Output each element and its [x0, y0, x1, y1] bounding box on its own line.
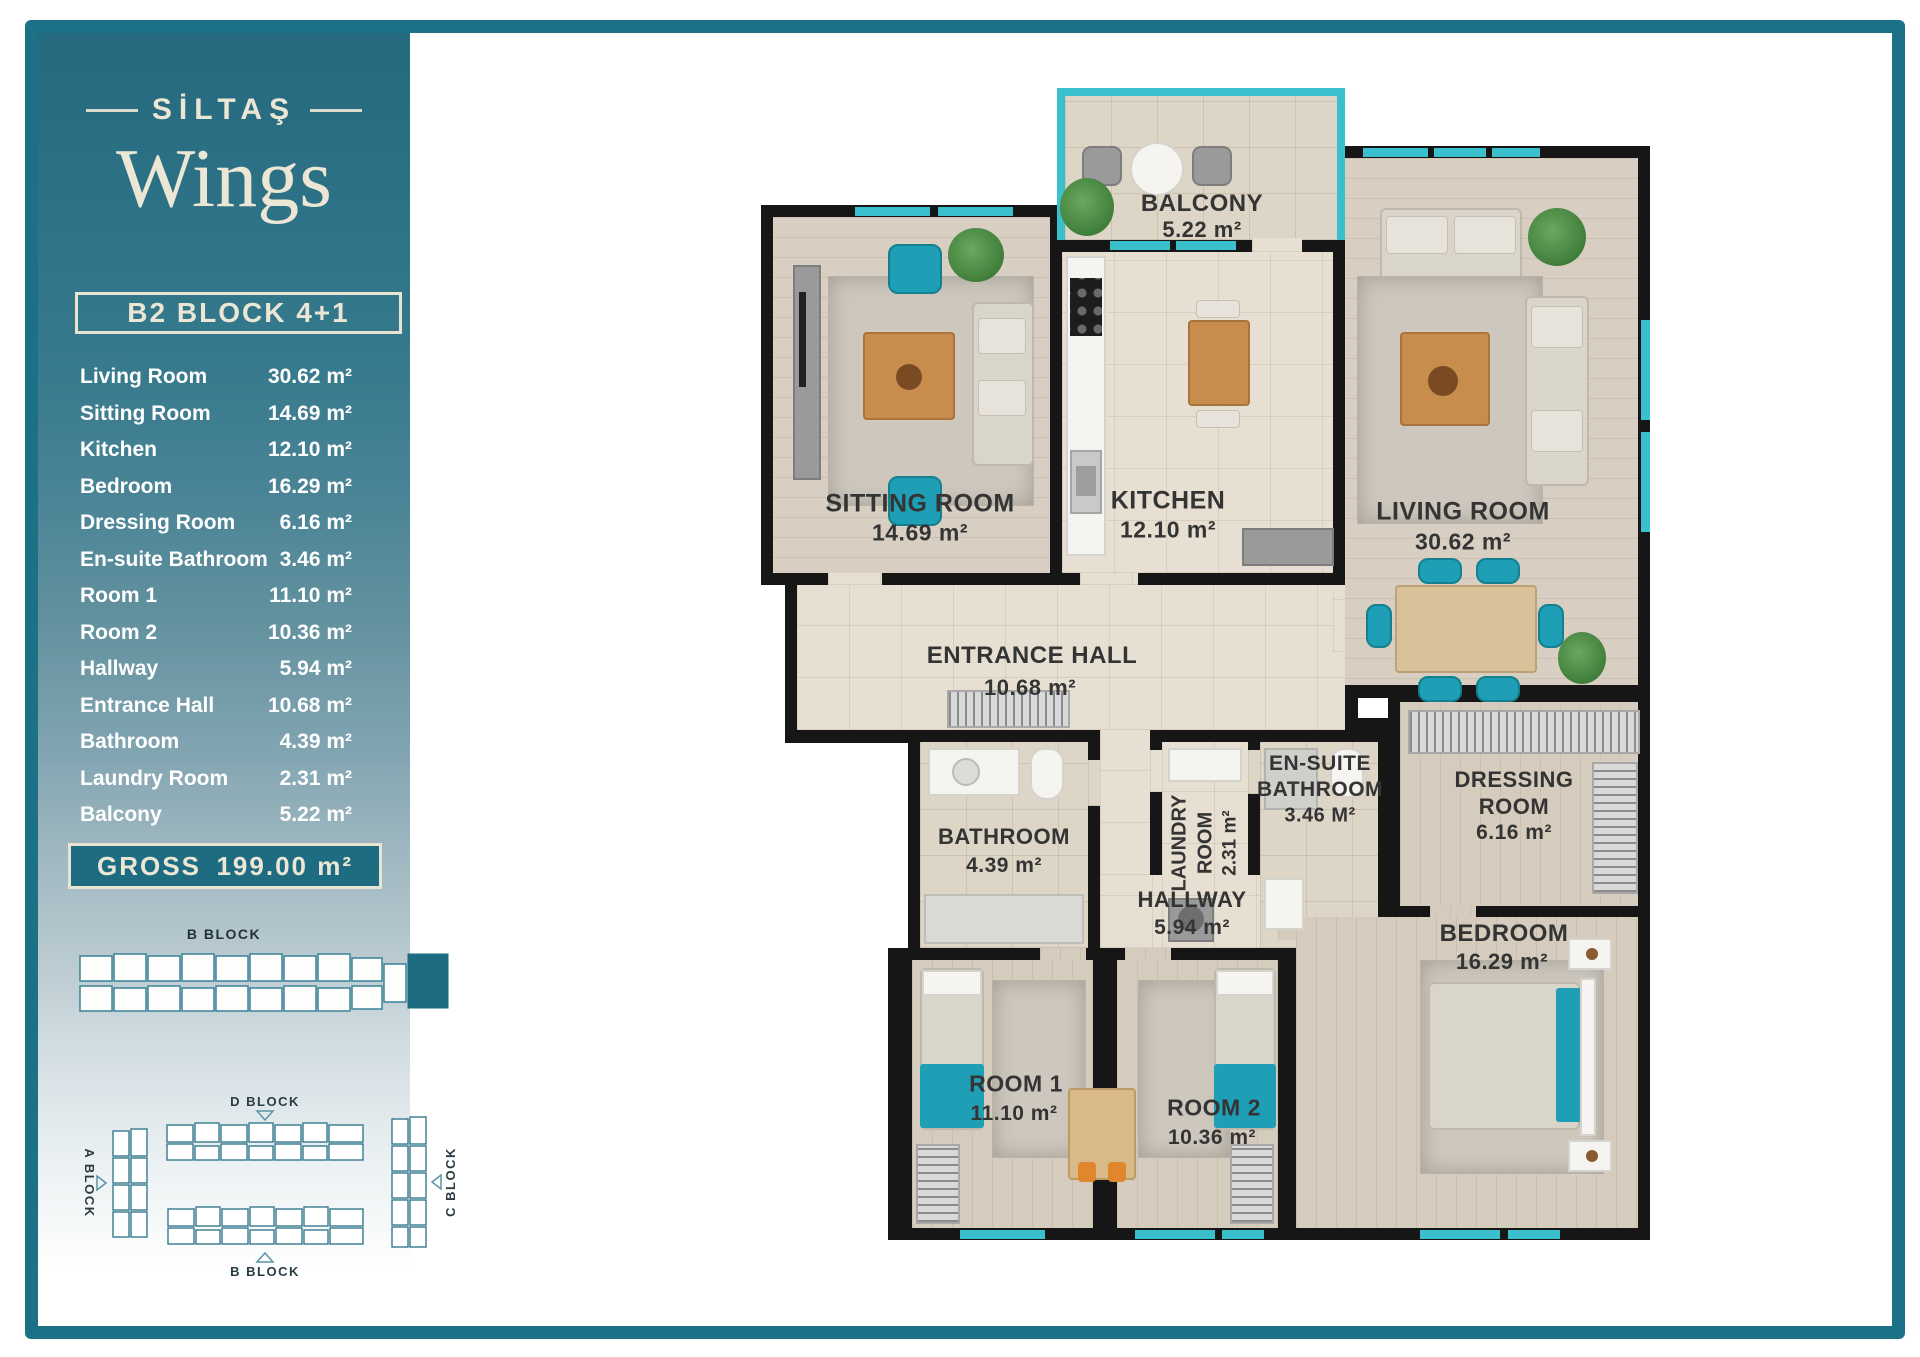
- area-row: Balcony5.22 m²: [80, 797, 352, 834]
- brochure-page: SİLTAŞ Wings B2 BLOCK 4+1 Living Room30.…: [0, 0, 1920, 1357]
- label-hallway-area: 5.94 m²: [1154, 916, 1230, 940]
- window: [1492, 148, 1540, 157]
- label-room2-area: 10.36 m²: [1168, 1126, 1256, 1150]
- kitchen-table: [1188, 320, 1250, 406]
- label-living-room-area: 30.62 m²: [1415, 529, 1511, 556]
- sink-basin: [1076, 466, 1096, 496]
- dining-chair: [1418, 558, 1462, 584]
- room2-wardrobe: [1230, 1144, 1274, 1224]
- dressing-closet: [1408, 710, 1640, 754]
- area-label: Laundry Room: [80, 767, 228, 791]
- window: [1135, 1230, 1215, 1239]
- gross-value: 199.00 m²: [216, 851, 353, 882]
- area-value: 6.16 m²: [280, 511, 352, 535]
- area-label: Balcony: [80, 803, 162, 827]
- label-hallway: HALLWAY: [1137, 887, 1246, 913]
- cooktop-icon: [1070, 278, 1102, 336]
- sofa-cushion: [978, 380, 1026, 416]
- label-laundry-line2: ROOM: [1193, 794, 1219, 891]
- label-laundry-line1: LAUNDRY: [1167, 794, 1193, 891]
- window: [1641, 432, 1650, 532]
- label-dressing-line2: ROOM: [1479, 794, 1549, 820]
- area-value: 16.29 m²: [268, 475, 352, 499]
- label-dressing-area: 6.16 m²: [1476, 821, 1552, 845]
- block-strip-diagram: [78, 952, 450, 1020]
- label-ensuite-line2: BATHROOM: [1257, 778, 1383, 802]
- area-label: Sitting Room: [80, 402, 211, 426]
- site-b-block-label: B BLOCK: [230, 1264, 300, 1279]
- a-block-building: [113, 1129, 147, 1237]
- label-balcony-area: 5.22 m²: [1162, 217, 1241, 243]
- area-value: 14.69 m²: [268, 402, 352, 426]
- area-label: Kitchen: [80, 438, 157, 462]
- bed-headboard: [1580, 978, 1596, 1136]
- area-row: Room 210.36 m²: [80, 615, 352, 652]
- area-label: Bedroom: [80, 475, 172, 499]
- area-label: Room 2: [80, 621, 157, 645]
- area-row: Bedroom16.29 m²: [80, 469, 352, 506]
- block-title: B2 BLOCK 4+1: [127, 297, 349, 329]
- brand-product-name: Wings: [38, 137, 410, 221]
- b-block-building: [168, 1207, 363, 1244]
- block-diagram-label: B BLOCK: [38, 926, 410, 942]
- label-ensuite-area: 3.46 M²: [1284, 805, 1355, 828]
- area-value: 4.39 m²: [280, 730, 352, 754]
- logo-dash-right-icon: [310, 109, 362, 112]
- area-label: Entrance Hall: [80, 694, 214, 718]
- label-entrance-hall: ENTRANCE HALL: [927, 642, 1138, 670]
- site-d-block-label: D BLOCK: [230, 1094, 300, 1109]
- door-room2: [1125, 948, 1171, 960]
- door-balcony: [1252, 238, 1302, 252]
- label-bedroom-area: 16.29 m²: [1456, 949, 1548, 975]
- d-block-arrow-icon: [257, 1111, 273, 1120]
- window: [1420, 1230, 1500, 1239]
- label-kitchen-area: 12.10 m²: [1120, 517, 1216, 544]
- sofa-cushion: [978, 318, 1026, 354]
- table-decor: [1428, 366, 1458, 396]
- door-kitchen: [1080, 573, 1138, 585]
- window: [1363, 148, 1428, 157]
- window: [1110, 241, 1170, 250]
- area-label: Living Room: [80, 365, 207, 389]
- gross-label: GROSS: [97, 851, 201, 882]
- label-bedroom: BEDROOM: [1440, 920, 1569, 948]
- area-value: 10.36 m²: [268, 621, 352, 645]
- room1-wardrobe: [916, 1144, 960, 1224]
- c-block-building: [392, 1117, 426, 1247]
- shower: [924, 894, 1084, 944]
- sofa-cushion: [1386, 216, 1448, 254]
- label-laundry-area: 2.31 m²: [1219, 794, 1244, 891]
- hall-corridor: [1100, 730, 1150, 875]
- dining-chair: [1476, 558, 1520, 584]
- area-value: 30.62 m²: [268, 365, 352, 389]
- label-room2: ROOM 2: [1167, 1095, 1261, 1122]
- area-value: 10.68 m²: [268, 694, 352, 718]
- toilet-icon: [1030, 748, 1064, 800]
- area-row: Laundry Room2.31 m²: [80, 761, 352, 798]
- area-row: Room 111.10 m²: [80, 578, 352, 615]
- tv-icon: [799, 292, 806, 387]
- plant-icon: [1060, 178, 1114, 236]
- area-label: Dressing Room: [80, 511, 235, 535]
- brand-name: SİLTAŞ: [152, 93, 296, 127]
- label-bathroom: BATHROOM: [938, 824, 1070, 850]
- window: [1434, 148, 1486, 157]
- window: [960, 1230, 1045, 1239]
- label-living-room: LIVING ROOM: [1376, 498, 1550, 527]
- dining-chair: [1366, 604, 1392, 648]
- highlighted-unit: [408, 954, 448, 1008]
- area-value: 11.10 m²: [269, 584, 352, 608]
- label-ensuite-line1: EN-SUITE: [1269, 752, 1371, 776]
- plant-icon: [948, 228, 1004, 282]
- area-row: En-suite Bathroom3.46 m²: [80, 542, 352, 579]
- window: [1641, 320, 1650, 420]
- label-room1: ROOM 1: [969, 1071, 1063, 1098]
- area-row: Kitchen12.10 m²: [80, 432, 352, 469]
- area-row: Hallway5.94 m²: [80, 651, 352, 688]
- gross-area-box: GROSS 199.00 m²: [68, 843, 382, 889]
- bed-pillow: [922, 970, 982, 996]
- area-value: 5.94 m²: [280, 657, 352, 681]
- sofa-cushion: [1531, 410, 1583, 452]
- area-row: Entrance Hall10.68 m²: [80, 688, 352, 725]
- window: [1222, 1230, 1264, 1239]
- area-row: Dressing Room6.16 m²: [80, 505, 352, 542]
- window: [855, 207, 930, 216]
- dining-chair: [1476, 676, 1520, 702]
- sofa-cushion: [1454, 216, 1516, 254]
- window: [938, 207, 1013, 216]
- area-label: Hallway: [80, 657, 158, 681]
- area-label: En-suite Bathroom: [80, 548, 268, 572]
- plant-icon: [1558, 632, 1606, 684]
- dining-chair: [1418, 676, 1462, 702]
- balcony-table: [1130, 142, 1184, 196]
- plant-icon: [1528, 208, 1586, 266]
- door-laundry: [1150, 750, 1162, 792]
- laundry-shelf: [1168, 748, 1242, 782]
- door-sitting-room: [828, 573, 882, 585]
- area-label: Room 1: [80, 584, 157, 608]
- b-block-arrow-icon: [257, 1253, 273, 1262]
- label-bathroom-area: 4.39 m²: [966, 854, 1042, 878]
- door-bathroom: [1088, 760, 1100, 806]
- label-entrance-hall-area: 10.68 m²: [984, 675, 1076, 701]
- block-title-box: B2 BLOCK 4+1: [75, 292, 402, 334]
- kitchen-cabinet: [1242, 528, 1334, 566]
- label-sitting-room: SITTING ROOM: [825, 490, 1014, 519]
- label-balcony: BALCONY: [1141, 190, 1263, 218]
- dining-chair: [1538, 604, 1564, 648]
- area-value: 12.10 m²: [268, 438, 352, 462]
- sofa-cushion: [1531, 306, 1583, 348]
- area-value: 3.46 m²: [280, 548, 352, 572]
- area-value: 5.22 m²: [280, 803, 352, 827]
- area-value: 2.31 m²: [280, 767, 352, 791]
- area-list: Living Room30.62 m² Sitting Room14.69 m²…: [80, 359, 352, 834]
- c-block-arrow-icon: [432, 1175, 441, 1189]
- a-block-arrow-icon: [97, 1176, 106, 1190]
- site-a-block-label: A BLOCK: [82, 1148, 97, 1217]
- label-kitchen: KITCHEN: [1111, 487, 1226, 516]
- d-block-building: [167, 1123, 363, 1160]
- site-c-block-label: C BLOCK: [443, 1147, 458, 1217]
- washbasin-bowl: [952, 758, 980, 786]
- area-label: Bathroom: [80, 730, 179, 754]
- dining-table: [1395, 585, 1537, 673]
- label-room1-area: 11.10 m²: [971, 1102, 1058, 1126]
- logo-dash-left-icon: [86, 109, 138, 112]
- kitchen-chair: [1196, 300, 1240, 318]
- armchair: [888, 244, 942, 294]
- bed-pillow: [1216, 970, 1274, 996]
- window: [1508, 1230, 1560, 1239]
- kitchen-chair: [1196, 410, 1240, 428]
- dressing-closet-side: [1592, 762, 1638, 894]
- area-row: Living Room30.62 m²: [80, 359, 352, 396]
- balcony-chair: [1192, 146, 1232, 186]
- tv-unit: [793, 265, 821, 480]
- door-living-room: [1333, 590, 1345, 652]
- floor-plan: BALCONY 5.22 m² SITTING ROOM 14.69 m² KI…: [630, 80, 1665, 1260]
- desk-chair: [1078, 1162, 1096, 1182]
- area-row: Sitting Room14.69 m²: [80, 396, 352, 433]
- site-plan: D BLOCK B BLOCK: [55, 1085, 485, 1280]
- bed-pillows: [1556, 988, 1582, 1122]
- label-dressing-line1: DRESSING: [1455, 767, 1574, 793]
- door-dressing: [1430, 906, 1476, 917]
- door-room1: [1040, 948, 1086, 960]
- nightstand-knob: [1586, 948, 1598, 960]
- label-sitting-room-area: 14.69 m²: [872, 520, 968, 547]
- brand-logo: SİLTAŞ: [38, 93, 410, 127]
- table-decor: [896, 364, 922, 390]
- desk-chair: [1108, 1162, 1126, 1182]
- nightstand-knob: [1586, 1150, 1598, 1162]
- area-row: Bathroom4.39 m²: [80, 724, 352, 761]
